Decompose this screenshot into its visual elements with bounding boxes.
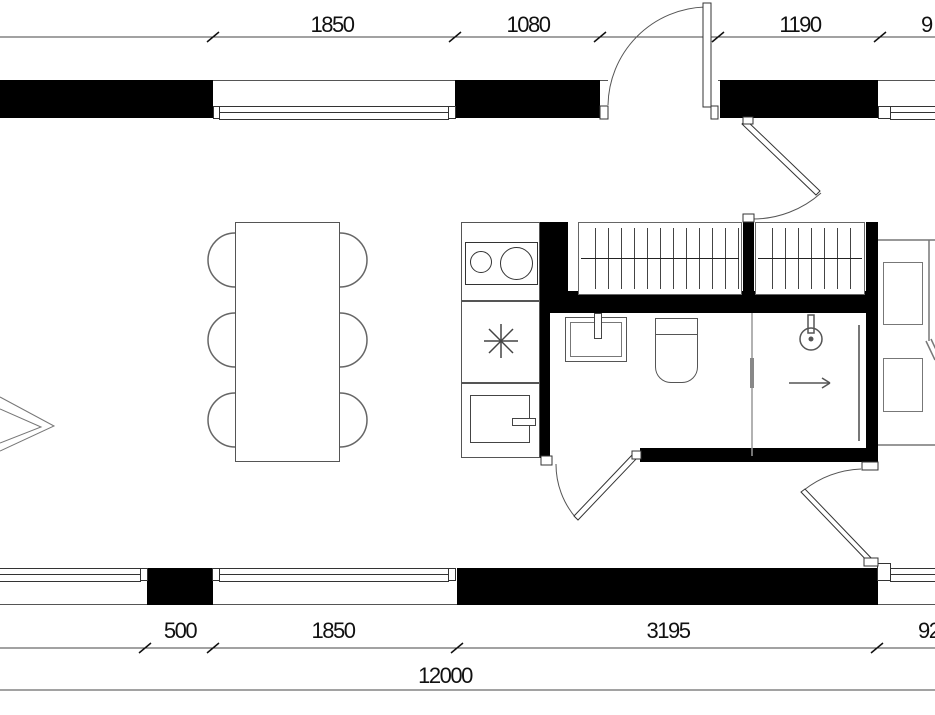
- chairs: [208, 233, 367, 447]
- bedroom-door: [801, 462, 878, 566]
- chair-right-3: [340, 393, 367, 447]
- bathroom-door-jamb-right: [632, 451, 641, 459]
- entrance-door-jamb-left: [600, 106, 608, 119]
- dim-bottom-right-clipped: 92: [918, 620, 935, 642]
- dim-top-right-clipped: 9: [921, 14, 932, 36]
- dim-bottom-1850: 1850: [312, 620, 355, 642]
- dim-bottom-500: 500: [164, 620, 196, 642]
- hallway-door-hinge: [743, 117, 753, 124]
- left-edge-door-leaf: [0, 397, 54, 451]
- bedroom-lines: [878, 240, 935, 445]
- dim-bottom-3195: 3195: [647, 620, 690, 642]
- dimension-lines: [0, 37, 935, 690]
- entrance-door-jamb-right: [711, 106, 718, 119]
- dim-top-1080: 1080: [507, 14, 550, 36]
- chair-left-1: [208, 233, 235, 287]
- chair-right-1: [340, 233, 367, 287]
- shower-head-icon: [800, 315, 822, 350]
- bathroom-door-jamb-left: [541, 456, 552, 465]
- bathroom-door: [541, 451, 641, 520]
- plan-linework: [0, 0, 935, 715]
- entrance-door-leaf: [703, 3, 711, 107]
- hallway-door-strike-jamb: [743, 214, 754, 222]
- dimension-ticks: [139, 32, 886, 653]
- bedroom-door-jamb-top: [862, 462, 878, 470]
- bathroom-door-leaf: [574, 454, 637, 520]
- dim-top-1850: 1850: [311, 14, 354, 36]
- chair-left-3: [208, 393, 235, 447]
- bedroom-door-jamb-bottom: [864, 558, 878, 566]
- hallway-door-leaf: [742, 120, 820, 195]
- hallway-door: [742, 117, 821, 222]
- shower-partition: [750, 313, 859, 456]
- dim-top-1190: 1190: [779, 14, 820, 36]
- entrance-door: [600, 3, 718, 119]
- chair-left-2: [208, 313, 235, 367]
- floor-plan: 1850 1080 1190 9 500 1850 3195 92 12000: [0, 0, 935, 715]
- bedroom-door-leaf: [801, 489, 875, 565]
- drain-arrow-icon: [789, 378, 830, 388]
- star-symbol: [484, 324, 518, 358]
- dim-total-12000: 12000: [418, 665, 472, 687]
- chair-right-2: [340, 313, 367, 367]
